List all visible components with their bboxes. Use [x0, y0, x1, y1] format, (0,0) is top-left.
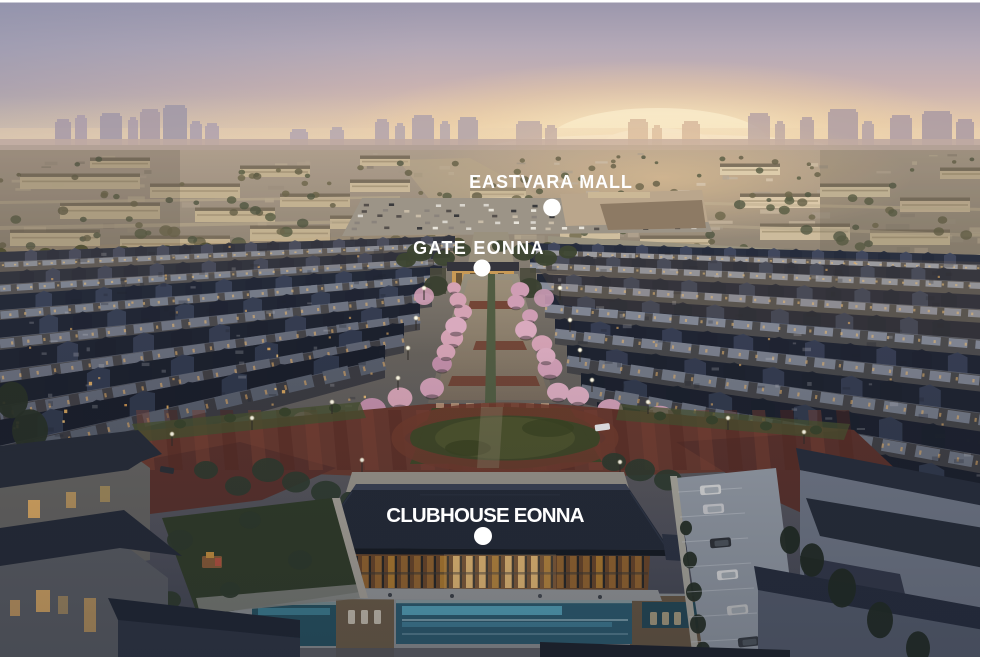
svg-text:EASTVARA MALL: EASTVARA MALL	[469, 172, 633, 192]
svg-text:CLUBHOUSE EONNA: CLUBHOUSE EONNA	[386, 504, 585, 527]
svg-text:GATE EONNA: GATE EONNA	[413, 238, 545, 258]
